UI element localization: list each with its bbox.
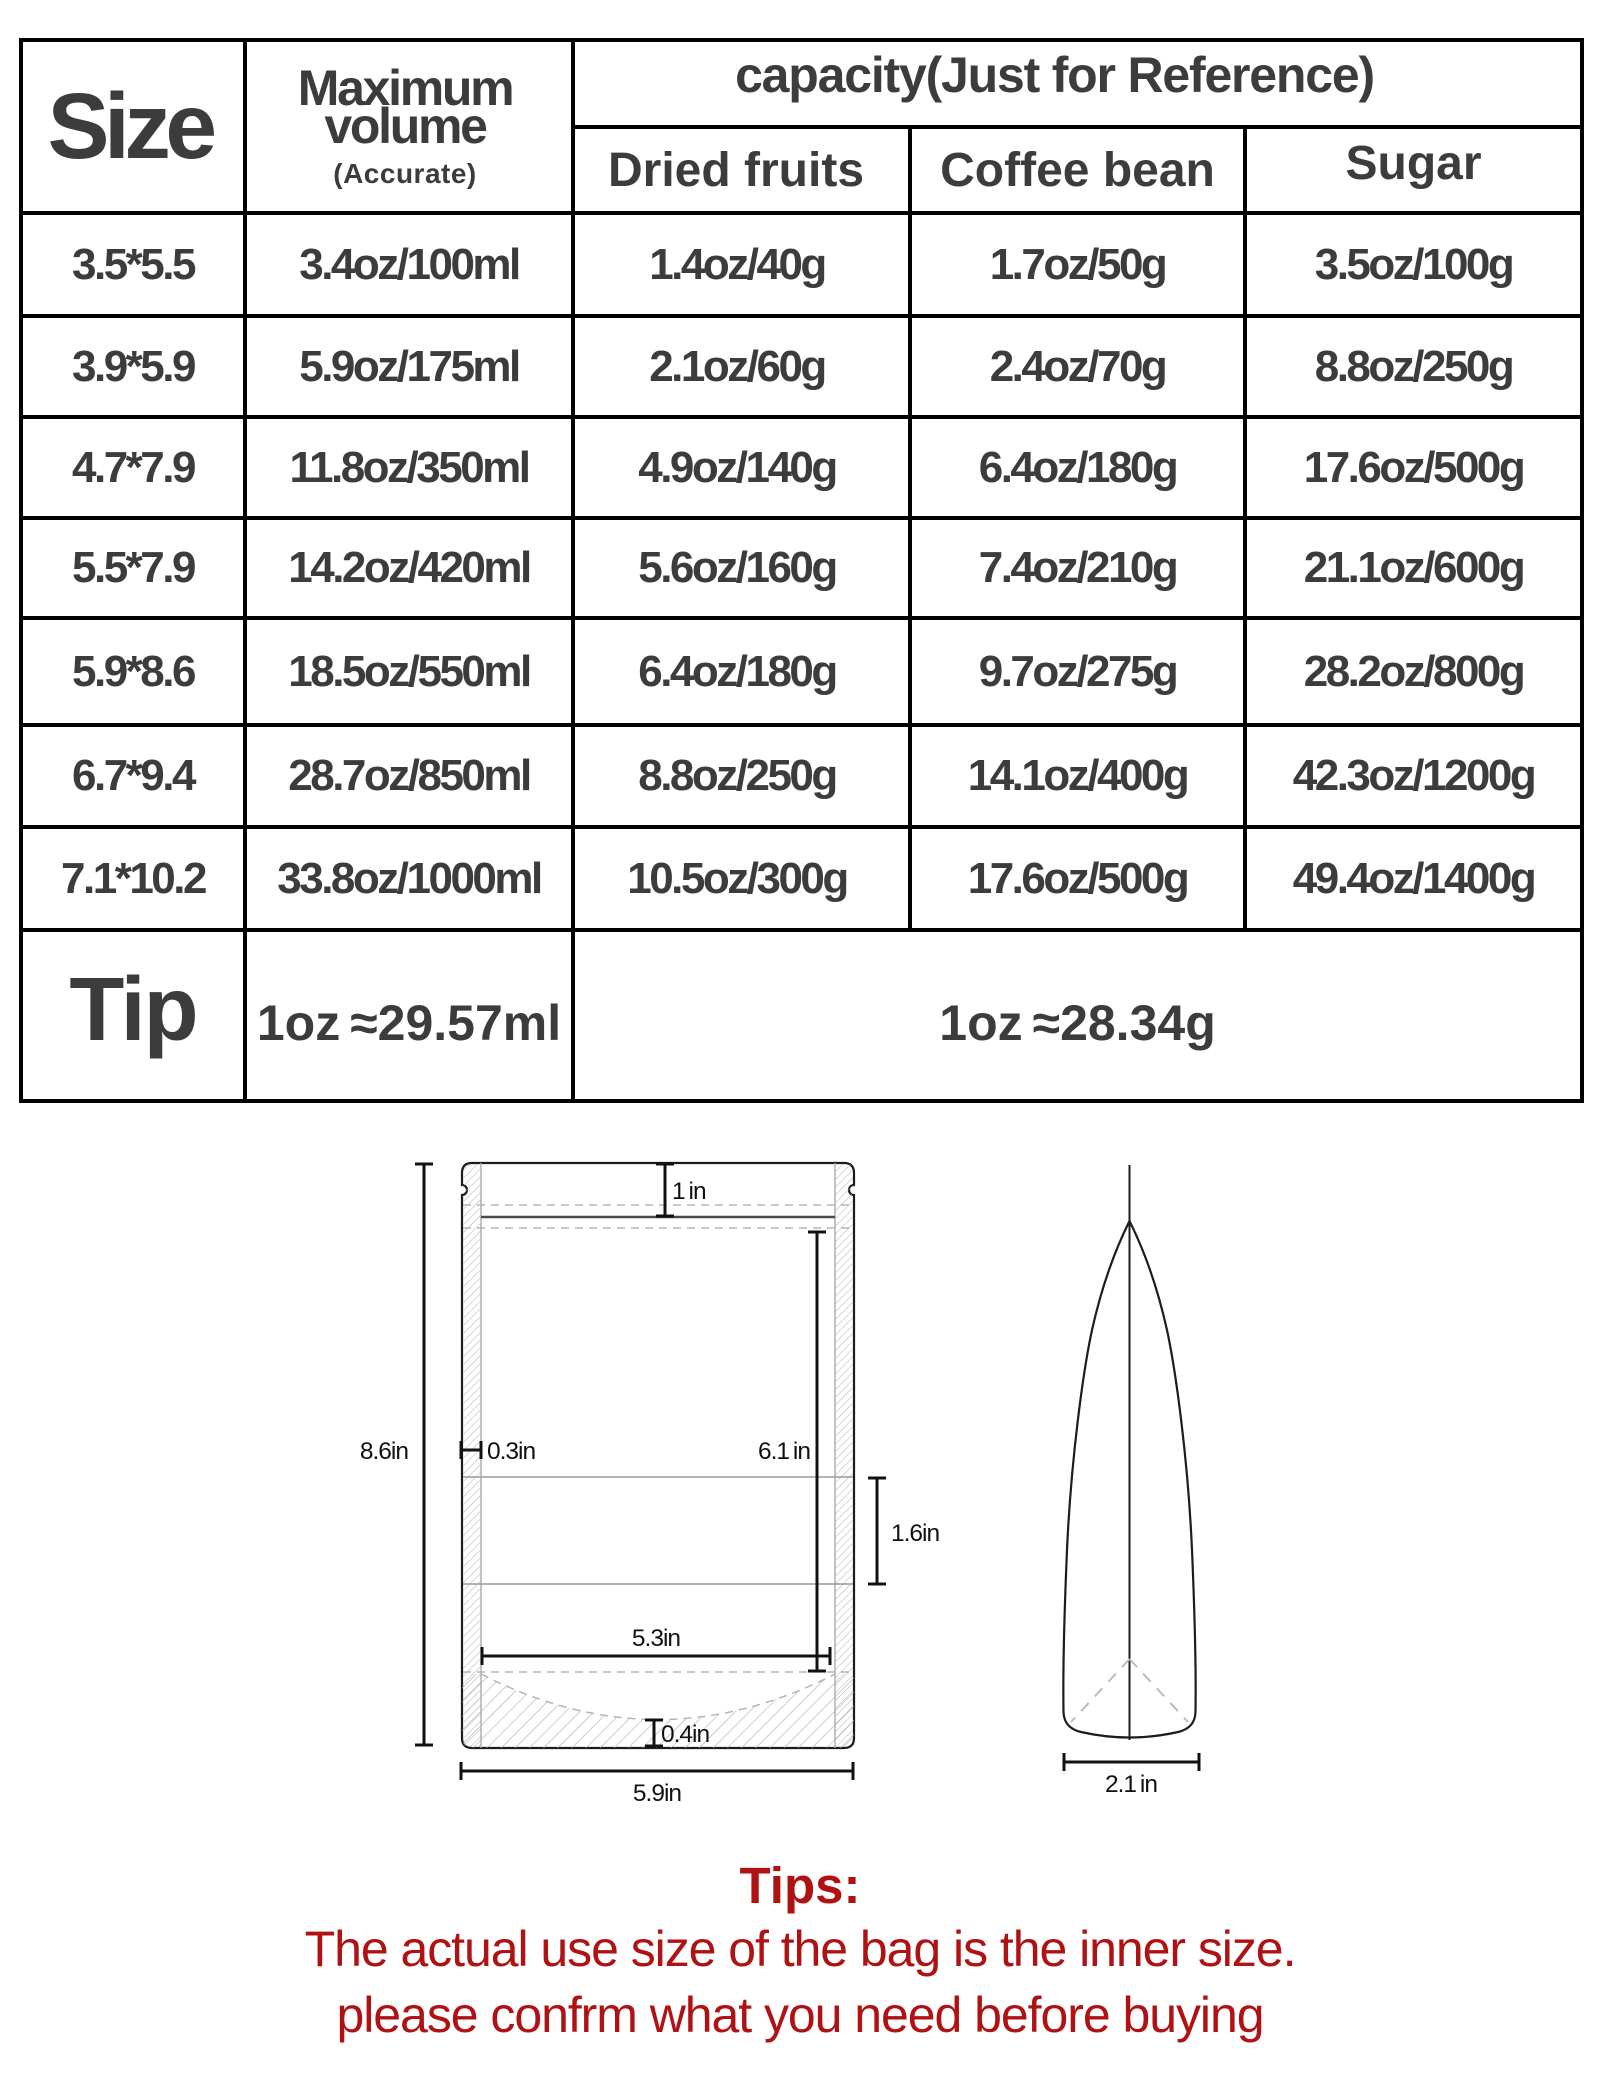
- svg-text:1.6in: 1.6in: [891, 1520, 940, 1547]
- svg-text:5.3in: 5.3in: [632, 1625, 681, 1652]
- svg-text:2.1 in: 2.1 in: [1105, 1771, 1157, 1798]
- svg-text:6.1 in: 6.1 in: [758, 1438, 810, 1465]
- svg-text:0.3in: 0.3in: [487, 1438, 536, 1465]
- svg-text:1 in: 1 in: [672, 1178, 706, 1205]
- svg-text:5.9in: 5.9in: [633, 1780, 682, 1807]
- svg-text:0.4in: 0.4in: [661, 1721, 710, 1748]
- svg-text:8.6in: 8.6in: [360, 1438, 409, 1465]
